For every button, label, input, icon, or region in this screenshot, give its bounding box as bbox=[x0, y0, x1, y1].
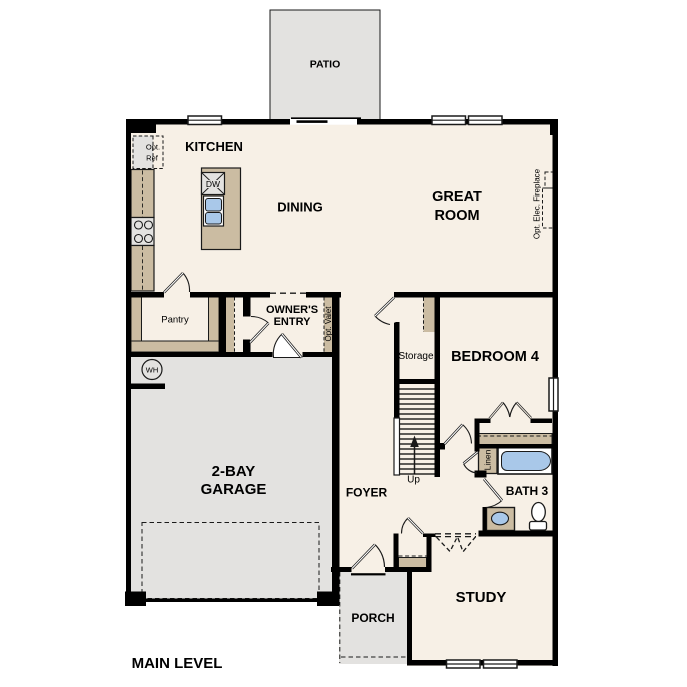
svg-text:BATH 3: BATH 3 bbox=[506, 484, 549, 498]
svg-text:WH: WH bbox=[146, 366, 159, 375]
svg-text:Opt. Elec. Fireplace: Opt. Elec. Fireplace bbox=[533, 168, 542, 239]
svg-text:Opt.: Opt. bbox=[146, 143, 160, 152]
svg-text:MAIN LEVEL: MAIN LEVEL bbox=[132, 655, 223, 672]
svg-text:2-BAY: 2-BAY bbox=[212, 463, 256, 480]
svg-text:Linen: Linen bbox=[483, 449, 493, 470]
svg-text:PATIO: PATIO bbox=[310, 59, 341, 71]
svg-text:Up: Up bbox=[407, 475, 420, 486]
svg-text:DINING: DINING bbox=[277, 200, 323, 215]
svg-text:BEDROOM 4: BEDROOM 4 bbox=[451, 349, 539, 365]
svg-text:KITCHEN: KITCHEN bbox=[185, 139, 243, 154]
svg-text:FOYER: FOYER bbox=[346, 486, 388, 500]
svg-text:OWNER'S: OWNER'S bbox=[266, 304, 318, 316]
svg-text:ENTRY: ENTRY bbox=[274, 316, 312, 328]
svg-text:Ref: Ref bbox=[146, 154, 159, 163]
svg-text:GREAT: GREAT bbox=[432, 189, 482, 205]
svg-text:DW: DW bbox=[206, 179, 220, 189]
svg-text:ROOM: ROOM bbox=[434, 208, 479, 224]
svg-text:GARAGE: GARAGE bbox=[201, 481, 267, 498]
svg-text:PORCH: PORCH bbox=[351, 611, 394, 625]
svg-text:Opt. Valet: Opt. Valet bbox=[324, 306, 333, 342]
svg-text:Storage: Storage bbox=[398, 351, 433, 362]
svg-text:STUDY: STUDY bbox=[456, 589, 507, 606]
svg-text:Pantry: Pantry bbox=[161, 315, 189, 326]
